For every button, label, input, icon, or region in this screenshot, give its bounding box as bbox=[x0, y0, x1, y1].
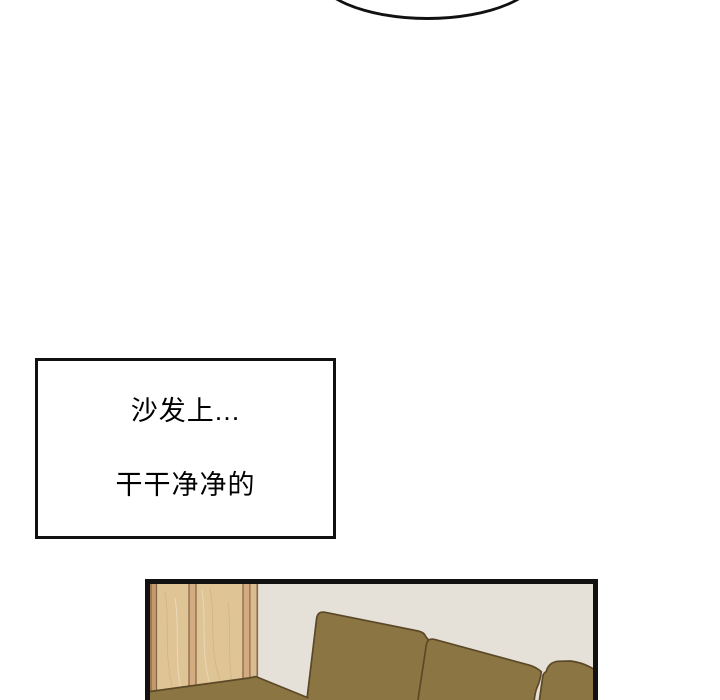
speech-bubble bbox=[312, 0, 543, 20]
panel-scene bbox=[150, 584, 593, 700]
narration-line-2: 干干净净的 bbox=[116, 470, 256, 500]
narration-line-1: 沙发上... bbox=[131, 396, 241, 426]
narration-box: 沙发上... 干干净净的 bbox=[35, 358, 336, 539]
narration-text: 沙发上... 干干净净的 bbox=[116, 393, 256, 504]
comic-panel bbox=[145, 579, 598, 700]
